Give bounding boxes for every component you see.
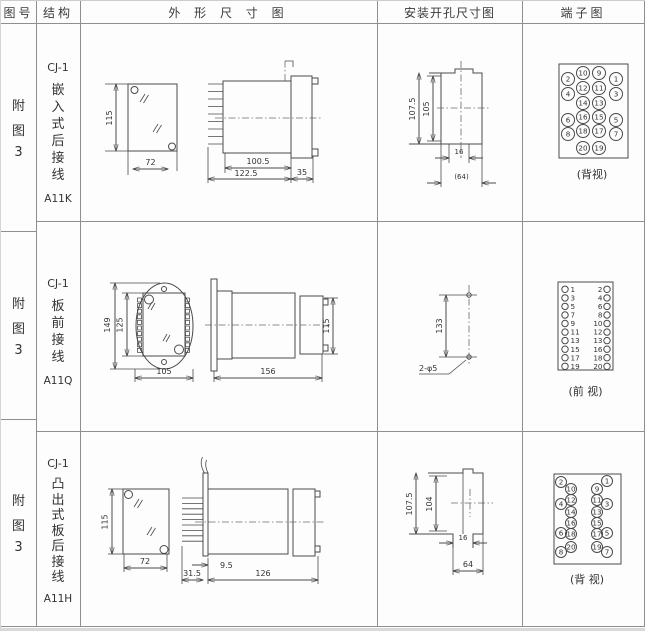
terminal-pins <box>182 498 203 541</box>
structure-char: 式 <box>51 118 64 131</box>
dim-label: 104 <box>425 496 434 511</box>
svg-text:19: 19 <box>571 362 581 371</box>
svg-text:1: 1 <box>614 75 619 84</box>
svg-text:1: 1 <box>605 476 610 485</box>
svg-text:15: 15 <box>592 518 601 527</box>
dim-label: 72 <box>140 557 150 566</box>
svg-text:9: 9 <box>597 69 602 78</box>
fig-char: 附 <box>12 95 25 114</box>
header-terminal: 端子图 <box>522 1 644 23</box>
outline-drawing-a11q: 149 125 105 156 115 <box>80 221 377 431</box>
svg-text:6: 6 <box>559 528 564 537</box>
glass-shine <box>140 94 162 133</box>
fig-char: 3 <box>14 343 22 358</box>
mounting-hole <box>145 295 154 304</box>
model-code: A11K <box>44 193 71 205</box>
terminal-diagram-a11h: 2 4 6 8 1 3 5 7 10 12 14 16 18 20 9 11 1… <box>522 431 644 626</box>
dim-label: 115 <box>322 318 331 333</box>
dim-label: 72 <box>145 158 155 167</box>
fig-char: 附 <box>12 293 25 312</box>
fig-label-row2: 附 图 3 <box>1 231 36 419</box>
dim-label: 107.5 <box>405 493 414 516</box>
structure-char: 板 <box>51 525 64 538</box>
svg-text:19: 19 <box>594 144 604 153</box>
svg-text:12: 12 <box>578 84 587 93</box>
view-label: (背 视) <box>570 572 604 586</box>
mounting-hole <box>125 491 133 499</box>
svg-text:2: 2 <box>559 477 564 486</box>
svg-text:20: 20 <box>566 542 576 551</box>
outline-drawing-a11h: 115 72 9.5 31.5 126 <box>80 431 377 626</box>
fig-char: 图 <box>12 318 25 337</box>
dim-label: 16 <box>455 148 464 156</box>
relay-type: CJ-1 <box>47 61 69 74</box>
svg-text:5: 5 <box>605 528 610 537</box>
terminal-pins <box>208 84 223 144</box>
dim-label: 105 <box>156 367 171 376</box>
glass-shine <box>148 302 170 342</box>
terminal-circles <box>556 476 613 558</box>
svg-text:10: 10 <box>578 69 588 78</box>
svg-text:9: 9 <box>595 484 600 493</box>
mounting-hole <box>175 345 184 354</box>
dim-label: 125 <box>116 317 125 332</box>
svg-text:10: 10 <box>566 484 576 493</box>
svg-text:3: 3 <box>614 90 619 99</box>
relay-type: CJ-1 <box>47 457 69 470</box>
svg-text:18: 18 <box>578 127 588 136</box>
view-label: (背视) <box>577 167 608 181</box>
dim-label: 64 <box>463 560 473 569</box>
structure-char: 出 <box>51 494 64 507</box>
svg-text:11: 11 <box>594 84 603 93</box>
svg-text:18: 18 <box>566 529 576 538</box>
mounting-drawing-a11h: 107.5 104 16 64 <box>377 431 522 626</box>
structure-a11h: CJ-1 凸 出 式 板 后 接 线 A11H <box>36 433 80 628</box>
svg-text:16: 16 <box>578 113 588 122</box>
terminal-strip <box>186 298 190 352</box>
svg-text:7: 7 <box>614 130 619 139</box>
structure-char: 板 <box>51 300 64 313</box>
structure-a11k: CJ-1 嵌 入 式 后 接 线 A11K <box>36 34 80 232</box>
dim-label: 105 <box>422 101 431 116</box>
svg-text:8: 8 <box>566 130 571 139</box>
dim-label: 9.5 <box>220 561 233 570</box>
datasheet-page: 图号 结构 外 形 尺 寸 图 安装开孔尺寸图 端子图 附 图 3 附 图 3 … <box>0 0 645 631</box>
dim-label: 156 <box>260 367 275 376</box>
header-outline: 外 形 尺 寸 图 <box>80 1 377 23</box>
fig-label-row1: 附 图 3 <box>1 23 36 231</box>
fig-char: 附 <box>12 490 25 509</box>
structure-char: 前 <box>51 317 64 330</box>
structure-char: 线 <box>51 351 64 364</box>
svg-text:5: 5 <box>614 116 619 125</box>
structure-char: 接 <box>51 152 64 165</box>
dim-label: 122.5 <box>235 169 258 178</box>
mounting-drawing-a11k: 107.5 105 16 (64) <box>377 23 522 221</box>
svg-text:16: 16 <box>566 518 576 527</box>
front-view: 149 125 105 <box>103 283 193 382</box>
structure-char: 入 <box>51 101 64 114</box>
mounting-hole <box>160 546 168 554</box>
header-mounting: 安装开孔尺寸图 <box>377 1 522 23</box>
structure-char: 后 <box>51 135 64 148</box>
side-view: 100.5 122.5 35 <box>208 61 323 183</box>
structure-char: 线 <box>51 571 64 584</box>
dim-label: 2-φ5 <box>419 364 437 373</box>
glass-shine <box>134 499 156 536</box>
outline-drawing-a11k: 115 72 100.5 122.5 35 <box>80 23 377 221</box>
svg-text:4: 4 <box>566 90 571 99</box>
dim-label: 107.5 <box>408 98 417 121</box>
dim-label: 35 <box>297 168 307 177</box>
svg-text:13: 13 <box>594 99 603 108</box>
grid-line-bottom <box>1 626 645 627</box>
svg-text:17: 17 <box>592 529 601 538</box>
structure-char: 凸 <box>51 478 64 491</box>
fig-char: 图 <box>12 515 25 534</box>
fig-label-row3: 附 图 3 <box>1 419 36 626</box>
structure-char: 接 <box>51 334 64 347</box>
model-code: A11H <box>44 593 72 605</box>
svg-text:11: 11 <box>592 495 601 504</box>
svg-text:12: 12 <box>566 495 575 504</box>
dim-label: 16 <box>459 534 468 542</box>
svg-text:19: 19 <box>592 542 602 551</box>
svg-text:17: 17 <box>594 127 603 136</box>
svg-text:2: 2 <box>566 75 571 84</box>
dim-label: 115 <box>101 514 110 529</box>
structure-char: 后 <box>51 540 64 553</box>
mounting-hole <box>169 143 176 150</box>
fig-char: 3 <box>14 145 22 160</box>
header-fig-no: 图号 <box>1 1 36 23</box>
header-structure: 结构 <box>36 1 80 23</box>
model-code: A11Q <box>44 375 73 387</box>
mounting-drawing-a11q: 133 2-φ5 <box>377 221 522 431</box>
hook <box>201 457 208 473</box>
svg-text:15: 15 <box>594 113 603 122</box>
dim-label: 149 <box>103 317 112 332</box>
dim-label: 133 <box>435 318 444 333</box>
dim-label: 115 <box>105 110 114 125</box>
structure-char: 接 <box>51 556 64 569</box>
dim-label: 126 <box>255 569 270 578</box>
dim-label: 31.5 <box>183 569 201 578</box>
terminal-diagram-a11q: 1 3 5 7 9 11 13 15 17 19 2 4 6 8 10 12 1… <box>522 221 644 431</box>
svg-text:8: 8 <box>559 547 564 556</box>
mounting-hole <box>131 87 138 94</box>
svg-text:14: 14 <box>566 507 576 516</box>
terminal-numbers: 10 12 14 16 18 20 9 11 13 15 17 19 2 4 6… <box>566 69 619 153</box>
fig-char: 3 <box>14 540 22 555</box>
dim-label: 100.5 <box>247 157 270 166</box>
front-view: 115 72 <box>101 489 170 572</box>
svg-text:20: 20 <box>578 144 588 153</box>
terminal-numbers: 1 3 5 7 9 11 13 15 17 19 2 4 6 8 10 12 1… <box>571 285 603 371</box>
relay-type: CJ-1 <box>47 277 69 290</box>
front-view: 115 72 <box>105 84 177 175</box>
svg-text:14: 14 <box>578 99 588 108</box>
side-view: 9.5 31.5 126 <box>182 457 326 584</box>
svg-text:6: 6 <box>566 116 571 125</box>
svg-text:7: 7 <box>605 547 610 556</box>
fig-char: 图 <box>12 120 25 139</box>
view-label: (前 视) <box>568 384 602 398</box>
dim-label: (64) <box>454 173 469 181</box>
side-view: 156 115 <box>205 279 338 382</box>
svg-text:20: 20 <box>593 362 603 371</box>
svg-text:4: 4 <box>559 499 564 508</box>
terminal-diagram-a11k: 10 12 14 16 18 20 9 11 13 15 17 19 2 4 6… <box>522 23 644 221</box>
structure-char: 式 <box>51 509 64 522</box>
terminal-circles <box>562 286 610 369</box>
svg-text:13: 13 <box>592 507 601 516</box>
structure-char: 线 <box>51 169 64 182</box>
svg-text:3: 3 <box>605 499 610 508</box>
structure-char: 嵌 <box>51 84 64 97</box>
structure-a11q: CJ-1 板 前 接 线 A11Q <box>36 227 80 437</box>
